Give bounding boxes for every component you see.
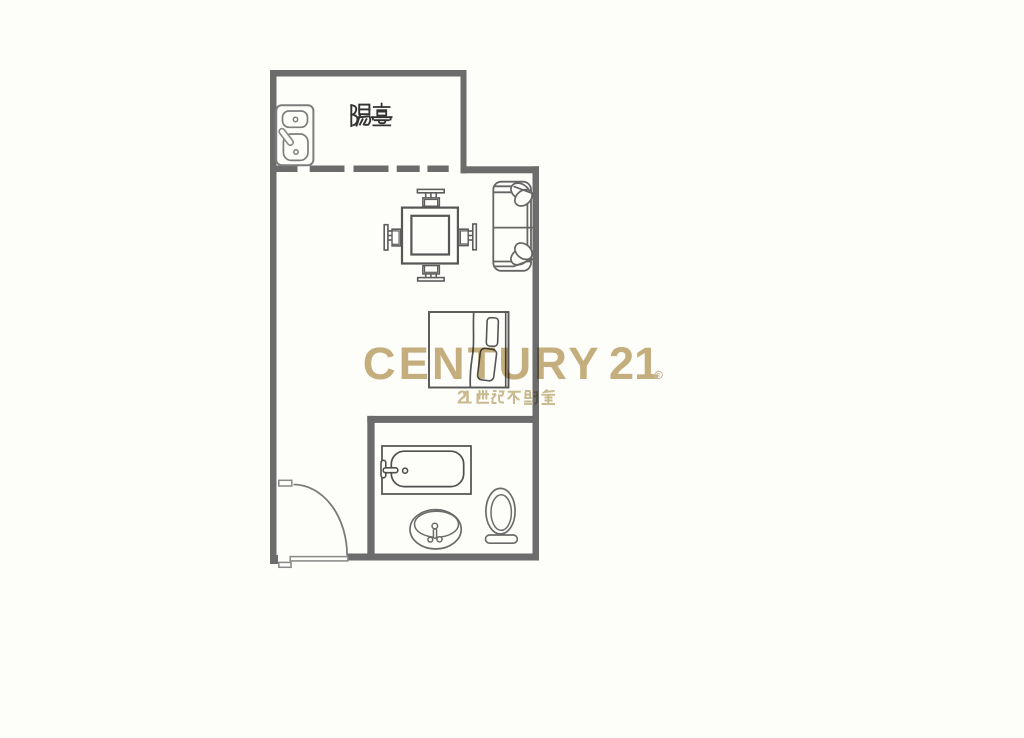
svg-text:R: R	[657, 373, 661, 379]
svg-text:1: 1	[462, 387, 472, 408]
svg-text:CENTURY: CENTURY	[363, 338, 602, 389]
svg-text:21: 21	[609, 338, 660, 389]
